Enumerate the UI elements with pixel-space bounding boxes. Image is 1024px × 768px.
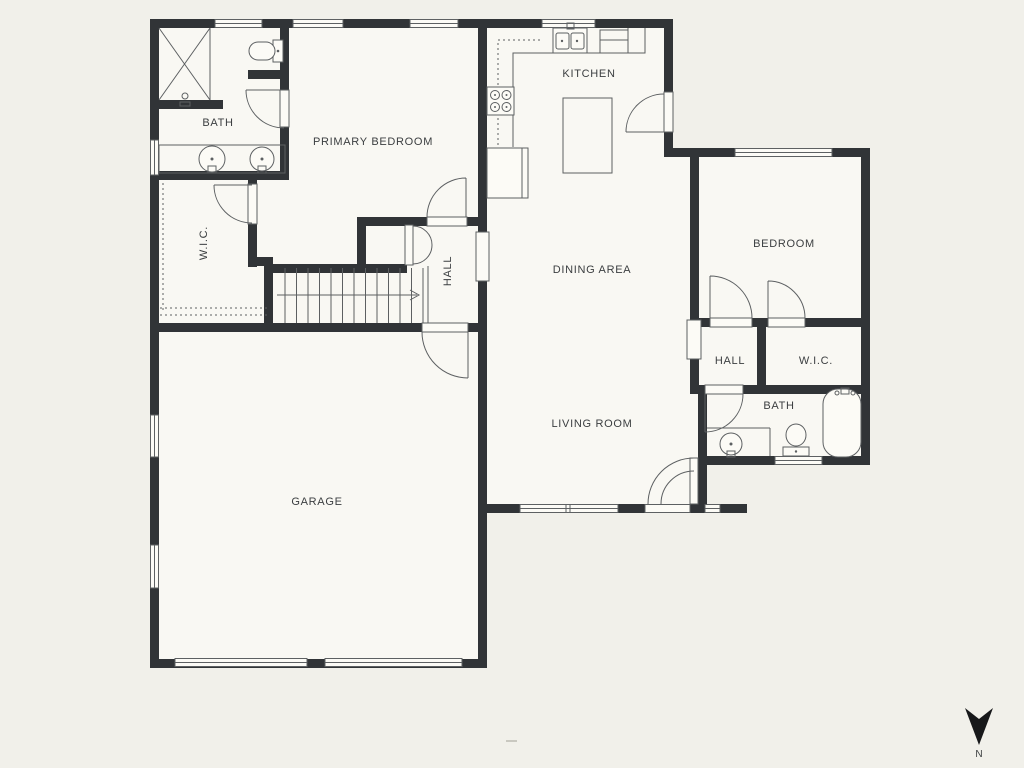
- entry-threshold: [645, 505, 690, 513]
- room-label-dining-area: DINING AREA: [553, 264, 632, 276]
- room-label-hall-left: HALL: [442, 256, 454, 286]
- room-label-bedroom: BEDROOM: [753, 238, 815, 250]
- window: [705, 505, 720, 513]
- room-label-wic-right: W.I.C.: [799, 355, 833, 367]
- kitchen-sink-icon: [553, 23, 587, 53]
- window: [151, 415, 159, 457]
- garage-door: [325, 659, 462, 667]
- hall-right-opening: [687, 320, 701, 359]
- window: [151, 545, 159, 588]
- window: [215, 20, 262, 28]
- window: [735, 149, 832, 157]
- room-label-hall-right: HALL: [715, 355, 745, 367]
- toilet-icon: [249, 40, 283, 62]
- room-label-primary-bedroom: PRIMARY BEDROOM: [313, 136, 433, 148]
- window: [293, 20, 343, 28]
- floor-plan-canvas: BATH PRIMARY BEDROOM KITCHEN W.I.C. HALL…: [0, 0, 1024, 768]
- bathtub-icon: [823, 388, 861, 457]
- dining-opening: [476, 232, 489, 281]
- compass: N: [965, 708, 993, 760]
- room-label-living-room: LIVING ROOM: [551, 418, 632, 430]
- room-label-bath-left: BATH: [202, 117, 233, 129]
- north-label: N: [975, 749, 982, 760]
- refrigerator-icon: [487, 148, 528, 198]
- room-label-garage: GARAGE: [291, 496, 342, 508]
- window: [775, 457, 822, 465]
- room-label-bath-right: BATH: [763, 400, 794, 412]
- garage-door: [175, 659, 307, 667]
- window: [151, 140, 159, 175]
- north-arrow-icon: [965, 708, 993, 745]
- stove-icon: [487, 87, 514, 115]
- room-label-kitchen: KITCHEN: [562, 68, 615, 80]
- window: [520, 505, 618, 513]
- window: [410, 20, 458, 28]
- room-label-wic-left: W.I.C.: [198, 226, 210, 260]
- floor-plan-drawing: BATH PRIMARY BEDROOM KITCHEN W.I.C. HALL…: [0, 0, 1024, 768]
